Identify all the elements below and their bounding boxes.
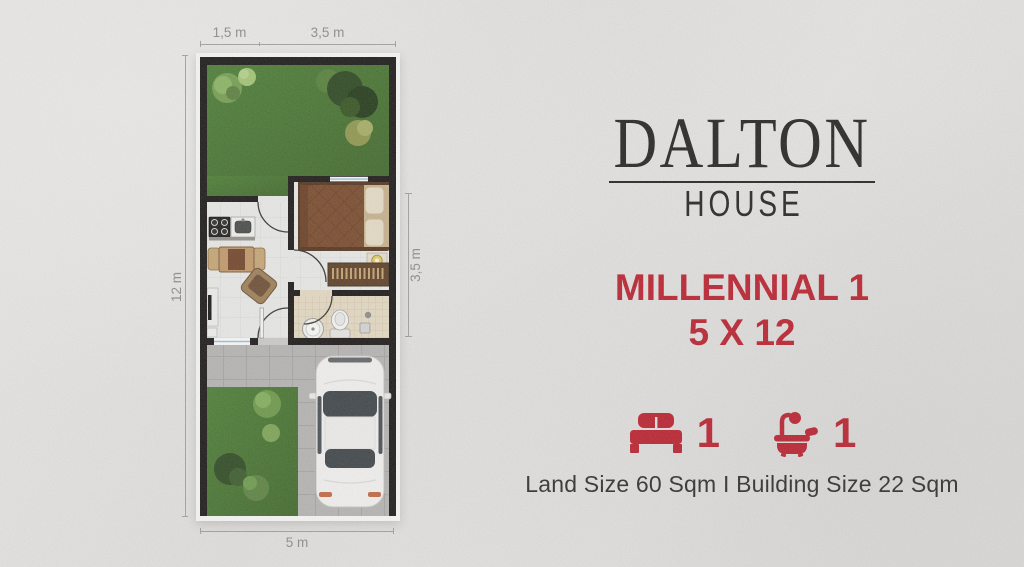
features-row: 1 1 — [492, 407, 992, 459]
tick — [405, 336, 412, 337]
bedroom-count: 1 — [697, 412, 720, 454]
dimension-line-bottom — [200, 531, 394, 532]
front-window — [214, 339, 250, 344]
tick — [393, 528, 394, 534]
info-panel: DALTON HOUSE MILLENNIAL 1 5 X 12 1 — [492, 0, 992, 567]
dimension-top-right: 3,5 m — [259, 26, 396, 40]
dimension-line-top — [200, 44, 396, 45]
land-building-sizes: Land Size 60 Sqm I Building Size 22 Sqm — [492, 471, 992, 497]
unit-name: MILLENNIAL 1 — [492, 269, 992, 307]
front-door-leaf — [260, 308, 264, 338]
bathroom-feature: 1 — [774, 409, 856, 457]
bedroom-window — [330, 177, 368, 182]
tv-cabinet — [207, 288, 218, 326]
bedroom-feature: 1 — [628, 412, 720, 454]
bathroom-count: 1 — [833, 412, 856, 454]
bathroom-sink — [303, 319, 324, 340]
tv — [208, 295, 212, 320]
dimension-bottom: 5 m — [200, 536, 394, 550]
unit-size: 5 X 12 — [492, 314, 992, 352]
dimension-right: 3,5 m — [409, 245, 423, 285]
bedroom-door-opening — [288, 250, 294, 282]
tick — [395, 41, 396, 47]
shoe-cabinet — [207, 328, 217, 337]
back-door-opening — [258, 196, 288, 202]
brand-subtitle: HOUSE — [547, 189, 937, 219]
tick — [182, 516, 188, 517]
dimension-line-left — [185, 55, 186, 517]
flyer: 1,5 m 3,5 m 12 m 3,5 m 5 m — [0, 0, 1024, 567]
tick — [200, 528, 201, 534]
tick — [182, 55, 188, 56]
car — [309, 356, 391, 507]
tick — [259, 42, 260, 46]
toilet — [330, 310, 350, 338]
kitchen-counter — [209, 237, 255, 241]
bath-icon — [774, 409, 820, 457]
bathroom-door-opening — [300, 290, 332, 296]
dimension-left: 12 m — [170, 267, 184, 307]
front-door-opening — [258, 338, 288, 345]
floor-plan — [196, 53, 400, 521]
tick — [405, 193, 412, 194]
bed-icon — [628, 413, 684, 453]
double-bed — [298, 181, 389, 251]
brand-name: DALTON — [532, 110, 952, 176]
floor-plan-drawing — [200, 57, 396, 517]
tick — [200, 41, 201, 47]
dimension-top-left: 1,5 m — [200, 26, 259, 40]
kitchen-sink — [231, 217, 255, 237]
stove — [209, 217, 230, 237]
wardrobe — [328, 263, 389, 286]
